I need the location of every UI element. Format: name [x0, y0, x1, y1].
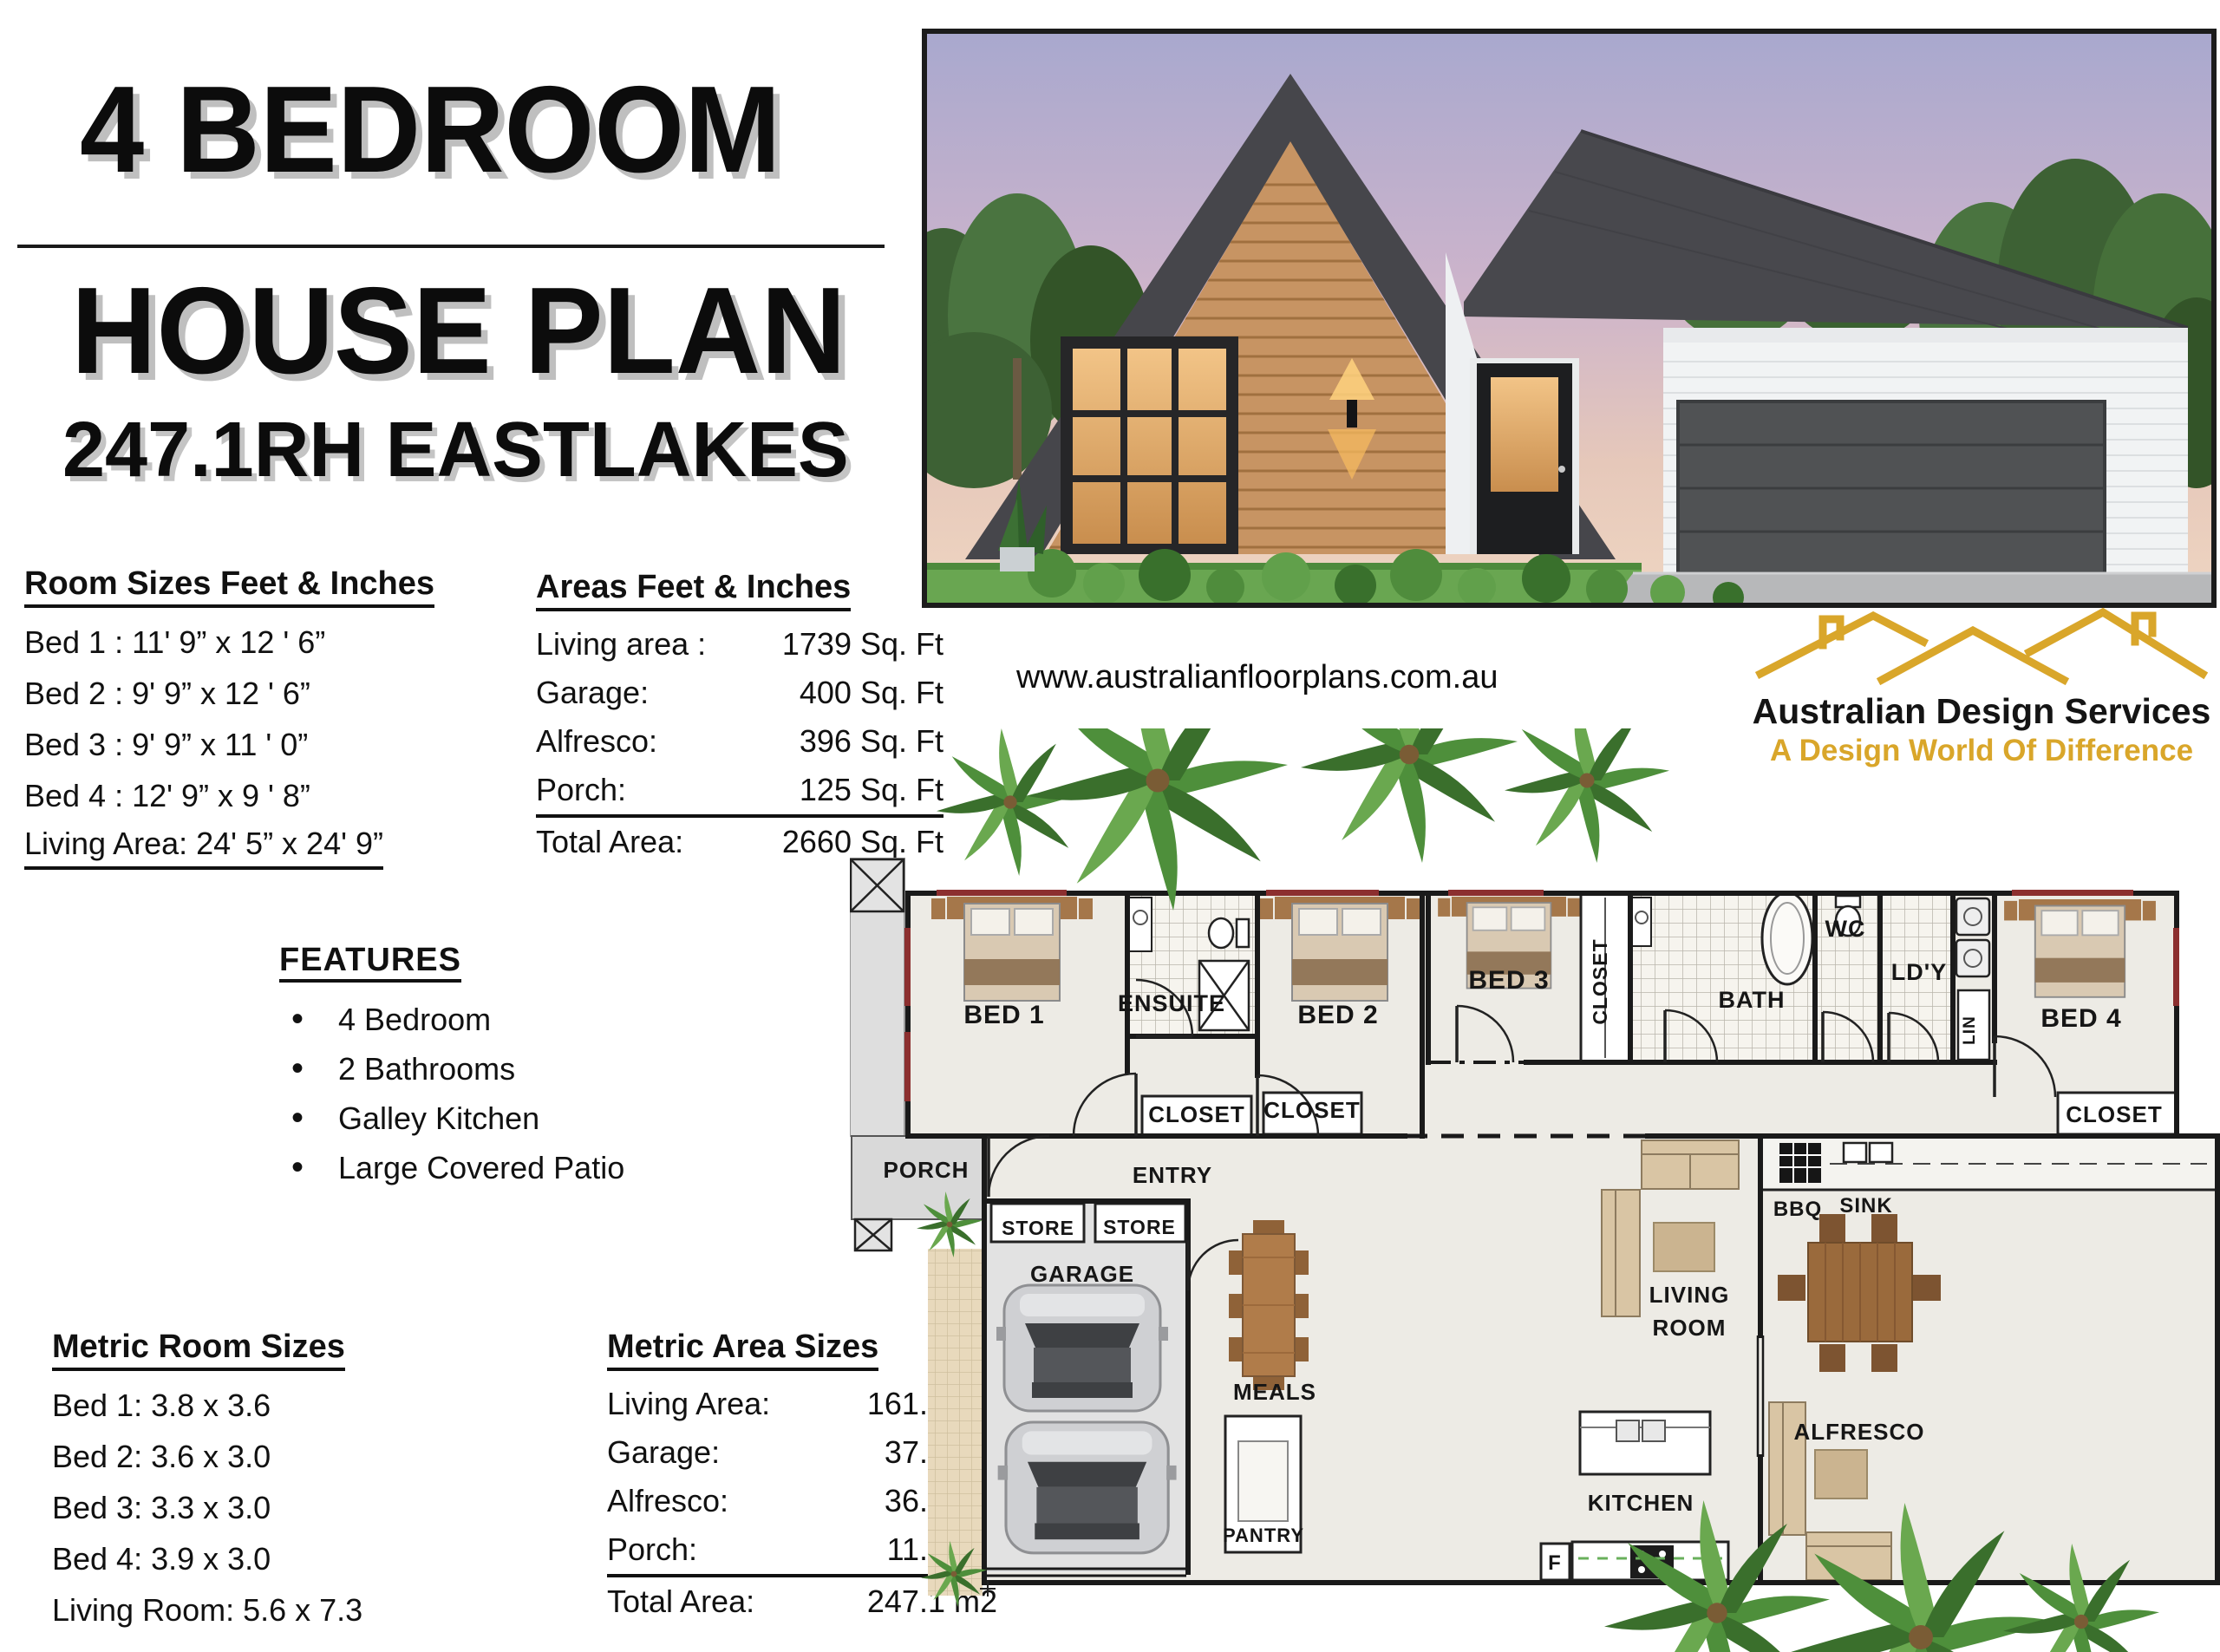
- area-label: Living area :: [536, 620, 706, 669]
- metric-room-line: Bed 1: 3.8 x 3.6: [52, 1380, 362, 1431]
- floorplan-room-label: CLOSET: [1589, 938, 1611, 1024]
- metric-room-line: Bed 2: 3.6 x 3.0: [52, 1431, 362, 1482]
- room-size-line: Bed 1 : 11' 9” x 12 ' 6”: [24, 617, 434, 668]
- area-label: Living Area:: [607, 1380, 770, 1428]
- floorplan-room-label: PORCH: [884, 1157, 970, 1183]
- area-label: Alfresco:: [607, 1477, 728, 1525]
- floorplan-room-label: BATH: [1719, 987, 1786, 1013]
- area-row: Living area : 1739 Sq. Ft: [536, 620, 943, 669]
- floorplan-room-label: LIVING: [1649, 1282, 1730, 1308]
- imperial-room-sizes-heading: Room Sizes Feet & Inches: [24, 565, 434, 608]
- entry-door: [1470, 358, 1579, 554]
- metric-areas-heading: Metric Area Sizes: [607, 1329, 878, 1371]
- floorplan-room-label: BED 4: [2040, 1004, 2121, 1033]
- title-line-1: 4 BEDROOM: [80, 59, 780, 201]
- metric-room-line: Bed 4: 3.9 x 3.0: [52, 1533, 362, 1584]
- area-value: 1739 Sq. Ft: [782, 620, 943, 669]
- floorplan-room-label: F: [1548, 1551, 1562, 1575]
- metric-room-line: Living Room: 5.6 x 7.3: [52, 1584, 362, 1636]
- feature-item: Galley Kitchen: [279, 1094, 624, 1143]
- front-window: [1061, 336, 1238, 554]
- floorplan-room-label: ENSUITE: [1118, 990, 1225, 1016]
- rooflines-icon: [1743, 600, 2220, 687]
- house-photo-svg: [922, 29, 2217, 608]
- floorplan-room-label: BED 1: [963, 1001, 1044, 1029]
- title-divider: [17, 245, 885, 248]
- floorplan-room-label: ALFRESCO: [1794, 1419, 1925, 1445]
- paved-path: [928, 1249, 983, 1596]
- flyer-page: 4 BEDROOM HOUSE PLAN 247.1RH EASTLAKES: [0, 0, 2220, 1652]
- car-2: [998, 1422, 1177, 1553]
- floorplan-room-label: CLOSET: [1263, 1097, 1360, 1123]
- room-size-line: Bed 3 : 9' 9” x 11 ' 0”: [24, 719, 434, 770]
- website-url: www.australianfloorplans.com.au: [1016, 659, 1498, 696]
- feature-item: Large Covered Patio: [279, 1143, 624, 1192]
- garage-facade: [1663, 343, 2188, 573]
- floorplan-room-label: WC: [1825, 916, 1866, 942]
- title-line-2: HOUSE PLAN: [71, 260, 846, 402]
- area-row: Garage: 400 Sq. Ft: [536, 669, 943, 717]
- floorplan-svg: BED 1ENSUITEBED 2BED 3CLOSETBATHWCLD'YLI…: [850, 728, 2220, 1652]
- floorplan-room-label: BED 2: [1297, 1001, 1378, 1029]
- floorplan-room-label: ENTRY: [1133, 1162, 1212, 1188]
- area-label: Garage:: [536, 669, 649, 717]
- room-size-line: Bed 2 : 9' 9” x 12 ' 6”: [24, 668, 434, 719]
- floorplan-room-label: KITCHEN: [1588, 1490, 1694, 1516]
- floorplan-room-label: LIN: [1961, 1015, 1979, 1045]
- area-value: 400 Sq. Ft: [800, 669, 943, 717]
- floorplan-room-label: PANTRY: [1223, 1525, 1304, 1546]
- floorplan-room-label: CLOSET: [2066, 1101, 2162, 1127]
- area-label: Total Area:: [607, 1577, 754, 1626]
- floorplan-room-label: GARAGE: [1030, 1261, 1134, 1287]
- area-label: Porch:: [536, 766, 626, 814]
- area-label: Alfresco:: [536, 717, 657, 766]
- area-label: Total Area:: [536, 818, 683, 866]
- floor-plan: BED 1ENSUITEBED 2BED 3CLOSETBATHWCLD'YLI…: [850, 728, 2220, 1652]
- floorplan-room-label: STORE: [1002, 1217, 1074, 1239]
- floorplan-room-label: LD'Y: [1891, 959, 1947, 985]
- floorplan-room-label: BED 3: [1468, 966, 1549, 995]
- floorplan-room-label: ROOM: [1653, 1315, 1727, 1341]
- floorplan-room-label: SINK: [1839, 1194, 1892, 1218]
- area-label: Porch:: [607, 1525, 697, 1574]
- title-line-3: 247.1RH EASTLAKES: [62, 406, 849, 495]
- floorplan-room-label: CLOSET: [1148, 1101, 1244, 1127]
- room-size-line: Bed 4 : 12' 9” x 9 ' 8”: [24, 770, 434, 821]
- car-1: [996, 1285, 1168, 1411]
- metric-room-sizes-heading: Metric Room Sizes: [52, 1329, 345, 1371]
- imperial-areas-heading: Areas Feet & Inches: [536, 569, 851, 611]
- floorplan-room-label: MEALS: [1233, 1379, 1316, 1405]
- feature-item: 2 Bathrooms: [279, 1044, 624, 1094]
- floorplan-room-label: STORE: [1103, 1216, 1176, 1238]
- room-size-line: Living Area: 24' 5” x 24' 9”: [24, 821, 383, 870]
- floorplan-room-label: BBQ: [1773, 1198, 1822, 1221]
- metric-room-line: Bed 3: 3.3 x 3.0: [52, 1482, 362, 1533]
- features-heading: FEATURES: [279, 942, 461, 983]
- house-photo: [922, 29, 2217, 608]
- metric-room-sizes: Metric Room Sizes Bed 1: 3.8 x 3.6 Bed 2…: [52, 1329, 362, 1636]
- imperial-room-sizes: Room Sizes Feet & Inches Bed 1 : 11' 9” …: [24, 565, 434, 870]
- features-list: FEATURES 4 Bedroom 2 Bathrooms Galley Ki…: [279, 942, 624, 1192]
- feature-item: 4 Bedroom: [279, 995, 624, 1044]
- area-label: Garage:: [607, 1428, 720, 1477]
- company-name: Australian Design Services: [1743, 691, 2220, 732]
